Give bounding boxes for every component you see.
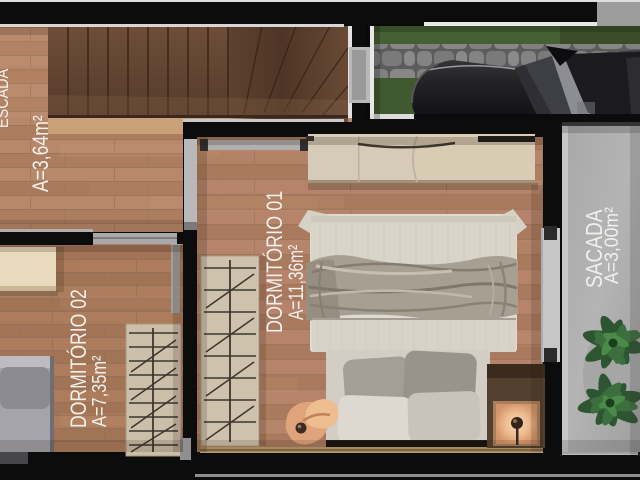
svg-text:A=7,35m²: A=7,35m²	[87, 355, 110, 427]
svg-text:A=3,00m²: A=3,00m²	[600, 207, 622, 284]
svg-text:A=3,64m²: A=3,64m²	[29, 115, 53, 192]
svg-text:ESCADA: ESCADA	[0, 69, 12, 128]
svg-text:A=11,36m²: A=11,36m²	[284, 245, 308, 320]
